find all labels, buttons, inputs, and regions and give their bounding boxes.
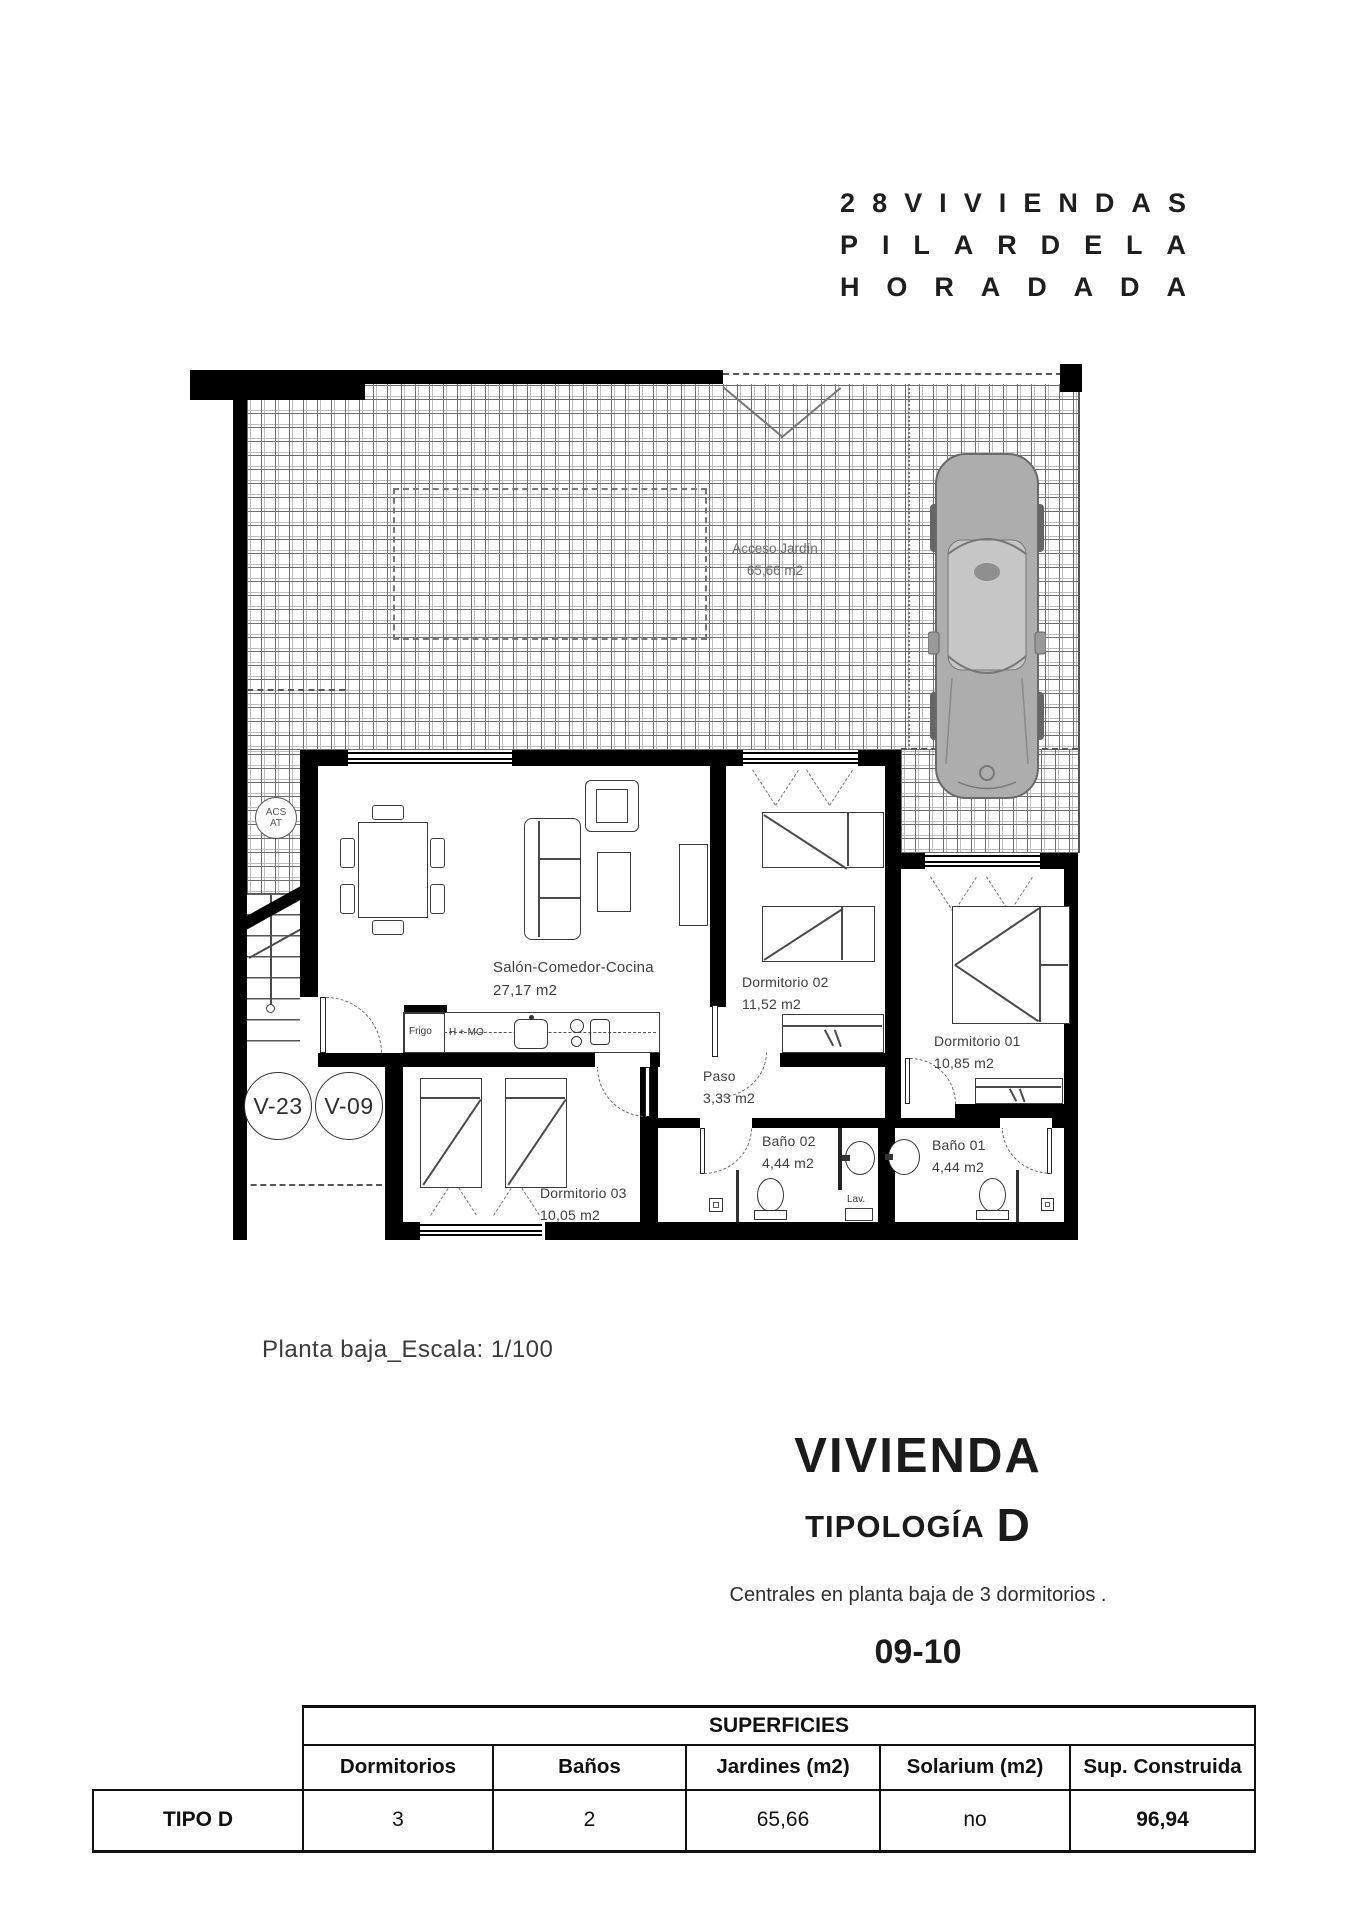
- shower-drain: [1041, 1198, 1054, 1211]
- wall: [1060, 364, 1082, 392]
- coffee-table: [597, 852, 631, 912]
- wall: [885, 766, 901, 1118]
- sofa-cushion-line: [538, 858, 580, 860]
- table-spacer: [93, 1745, 303, 1790]
- dining-table: [358, 822, 428, 918]
- fridge-label: Frigo: [409, 1026, 432, 1037]
- bed-fold-line: [507, 1099, 566, 1185]
- room-area: 10,85 m2: [934, 1053, 1021, 1075]
- stairs-rail-end: [266, 1004, 275, 1013]
- door-swing-arc: [1002, 1128, 1052, 1174]
- room-label-dorm02: Dormitorio 02 11,52 m2: [742, 972, 829, 1015]
- dining-chair: [430, 884, 445, 914]
- typology-title: VIVIENDA: [518, 1428, 1318, 1484]
- wall: [300, 750, 348, 766]
- door-swing-arc: [703, 1128, 752, 1174]
- dining-chair: [372, 920, 404, 935]
- room-area: 11,52 m2: [742, 994, 829, 1016]
- bed-single: [762, 812, 884, 868]
- typology-letter: D: [997, 1499, 1031, 1551]
- wall: [710, 766, 726, 1007]
- toilet: [979, 1178, 1006, 1212]
- wall: [1052, 1118, 1064, 1128]
- window-dorm01: [925, 855, 1040, 867]
- bed-single: [762, 906, 875, 962]
- window-swing: [806, 769, 830, 805]
- plot-boundary-right: [1078, 384, 1080, 853]
- surfaces-table: SUPERFICIES Dormitorios Baños Jardines (…: [92, 1705, 1256, 1853]
- value-dormitorios: 3: [303, 1790, 493, 1852]
- bed-pillow-line: [847, 813, 849, 866]
- room-name: Baño 02: [762, 1131, 816, 1153]
- window-swing: [829, 770, 853, 806]
- wardrobe-line: [783, 1025, 882, 1027]
- typology-units: 09-10: [518, 1633, 1318, 1672]
- window-swing: [930, 876, 954, 912]
- toilet-tank: [754, 1210, 787, 1220]
- garden-area: 65,66 m2: [690, 560, 860, 582]
- acs-line1: ACS: [266, 807, 287, 819]
- wall: [385, 1222, 420, 1240]
- sofa-back-line: [538, 821, 540, 937]
- acs-badge: ACS AT: [255, 797, 297, 839]
- washbasin: [845, 1141, 875, 1175]
- col-header-solarium: Solarium (m2): [880, 1745, 1070, 1790]
- wardrobe-line: [976, 1086, 1061, 1088]
- bed-pillow-line: [421, 1097, 480, 1099]
- plan-caption: Planta baja_Escala: 1/100: [262, 1336, 553, 1364]
- sofa: [524, 818, 581, 940]
- room-name: Dormitorio 03: [540, 1183, 627, 1205]
- parked-car: [928, 452, 1046, 802]
- wall: [385, 1067, 403, 1240]
- col-header-banos: Baños: [493, 1745, 686, 1790]
- bed-fold-line: [764, 814, 848, 869]
- dining-chair: [340, 838, 355, 868]
- door-swing-arc: [326, 997, 382, 1053]
- car-icon: [928, 452, 1046, 802]
- floor-plan: Acceso Jardín 65,66 m2: [0, 0, 1356, 1356]
- window-swing: [775, 770, 799, 806]
- value-banos: 2: [493, 1790, 686, 1852]
- counter-dashed-line: [444, 1032, 656, 1033]
- room-name: Dormitorio 02: [742, 972, 829, 994]
- typology-block: VIVIENDA TIPOLOGÍAD Centrales en planta …: [518, 1428, 1318, 1672]
- shower-screen: [1016, 1170, 1019, 1222]
- typology-subtitle-text: TIPOLOGÍA: [805, 1509, 985, 1544]
- bed-fold-line: [764, 908, 844, 960]
- unit-badge-v09-label: V-09: [324, 1093, 373, 1120]
- plot-dashed-line-bottom-left: [241, 1184, 382, 1186]
- room-label-dorm03: Dormitorio 03 10,05 m2: [540, 1183, 627, 1226]
- room-name: Dormitorio 01: [934, 1031, 1021, 1053]
- hanger-mark: [824, 1029, 834, 1046]
- door-swing-arc: [597, 1067, 647, 1117]
- pergola-dashed-outline: [393, 488, 707, 640]
- document-page: 28VIVIENDAS PILARDELA HORADADA Acceso Ja…: [0, 0, 1356, 1920]
- bed-line: [1039, 964, 1068, 966]
- room-name: Paso: [703, 1066, 755, 1088]
- col-header-jardines: Jardines (m2): [686, 1745, 880, 1790]
- kitchen-sink: [514, 1019, 548, 1049]
- acs-line2: AT: [270, 818, 282, 830]
- hanger-mark: [1009, 1088, 1017, 1101]
- col-header-sup-construida: Sup. Construida: [1070, 1745, 1255, 1790]
- wall: [650, 1053, 660, 1067]
- toilet: [757, 1178, 784, 1212]
- wall: [780, 1053, 885, 1067]
- typology-description: Centrales en planta baja de 3 dormitorio…: [518, 1584, 1318, 1607]
- room-label-dorm01: Dormitorio 01 10,85 m2: [934, 1031, 1021, 1074]
- wall: [658, 1118, 700, 1128]
- wall: [752, 1118, 878, 1128]
- wardrobe: [782, 1014, 884, 1053]
- armchair-seat: [596, 789, 628, 823]
- wall: [1040, 853, 1078, 869]
- armchair: [585, 780, 639, 832]
- wall: [318, 1053, 595, 1067]
- wall: [858, 750, 901, 766]
- window-dorm03: [420, 1224, 542, 1236]
- bed-single: [505, 1078, 567, 1188]
- window-salon: [348, 752, 512, 764]
- wall: [300, 766, 318, 997]
- value-solarium: no: [880, 1790, 1070, 1852]
- unit-badge-v23: V-23: [244, 1072, 312, 1140]
- room-label-bano02: Baño 02 4,44 m2: [762, 1131, 816, 1174]
- shower-drain: [709, 1198, 723, 1212]
- dining-chair: [340, 884, 355, 914]
- hob-burner: [590, 1019, 610, 1045]
- room-area: 3,33 m2: [703, 1088, 755, 1110]
- table-spacer: [93, 1707, 303, 1745]
- window-swing: [752, 769, 776, 805]
- dining-chair: [372, 805, 404, 820]
- room-label-bano01: Baño 01 4,44 m2: [932, 1135, 986, 1178]
- bed-fold-line: [955, 964, 1040, 1022]
- laundry-label: Lav.: [847, 1194, 865, 1205]
- hanger-mark: [1019, 1088, 1025, 1102]
- shower-screen: [736, 1170, 739, 1222]
- tv-cabinet: [679, 844, 708, 926]
- bed-fold-line: [955, 908, 1040, 966]
- basin-tap: [842, 1155, 850, 1161]
- garden-label: Acceso Jardín 65,66 m2: [690, 538, 860, 581]
- room-label-salon: Salón-Comedor-Cocina 27,17 m2: [493, 956, 654, 1003]
- wardrobe: [975, 1078, 1063, 1104]
- room-area: 10,05 m2: [540, 1205, 627, 1227]
- door-leaf: [712, 1005, 718, 1057]
- basin-tap: [885, 1154, 893, 1160]
- typology-subtitle: TIPOLOGÍAD: [518, 1498, 1318, 1552]
- washbasin: [888, 1139, 920, 1175]
- wall: [365, 370, 723, 384]
- sink-tap: [529, 1015, 534, 1020]
- toilet-tank: [976, 1210, 1009, 1220]
- wall: [955, 1104, 1065, 1118]
- bed-pillow-line: [841, 907, 843, 960]
- room-label-paso: Paso 3,33 m2: [703, 1066, 755, 1109]
- hob-burner: [570, 1019, 584, 1033]
- wall: [878, 1118, 1000, 1128]
- bed-pillow-line: [506, 1097, 565, 1099]
- dining-chair: [430, 838, 445, 868]
- wall: [190, 370, 365, 400]
- wall: [512, 750, 743, 766]
- room-area: 27,17 m2: [493, 979, 654, 1002]
- wall: [878, 1128, 895, 1222]
- bed-fold-line: [422, 1099, 481, 1185]
- hob-burner: [571, 1036, 582, 1047]
- unit-badge-v09: V-09: [315, 1072, 383, 1140]
- unit-badge-v23-label: V-23: [253, 1093, 302, 1120]
- room-area: 4,44 m2: [932, 1157, 986, 1179]
- hob: [566, 1015, 614, 1051]
- washing-machine: [845, 1208, 873, 1221]
- col-header-dormitorios: Dormitorios: [303, 1745, 493, 1790]
- row-label-tipo-d: TIPO D: [93, 1790, 303, 1852]
- table-title: SUPERFICIES: [303, 1707, 1255, 1745]
- garden-name: Acceso Jardín: [690, 538, 860, 560]
- room-area: 4,44 m2: [762, 1153, 816, 1175]
- kitchen-vent: [404, 1005, 447, 1012]
- plot-dashed-boundary-top: [723, 373, 1062, 375]
- garden-parking-divider: [908, 384, 910, 750]
- bed-double: [952, 906, 1070, 1024]
- value-jardines: 65,66: [686, 1790, 880, 1852]
- bed-single: [420, 1078, 482, 1188]
- room-name: Salón-Comedor-Cocina: [493, 956, 654, 979]
- sofa-cushion-line: [538, 897, 580, 899]
- room-name: Baño 01: [932, 1135, 986, 1157]
- value-sup-construida: 96,94: [1070, 1790, 1255, 1852]
- garden-dashed-line-left: [237, 689, 345, 691]
- window-dorm02: [743, 752, 858, 764]
- hanger-mark: [834, 1029, 842, 1046]
